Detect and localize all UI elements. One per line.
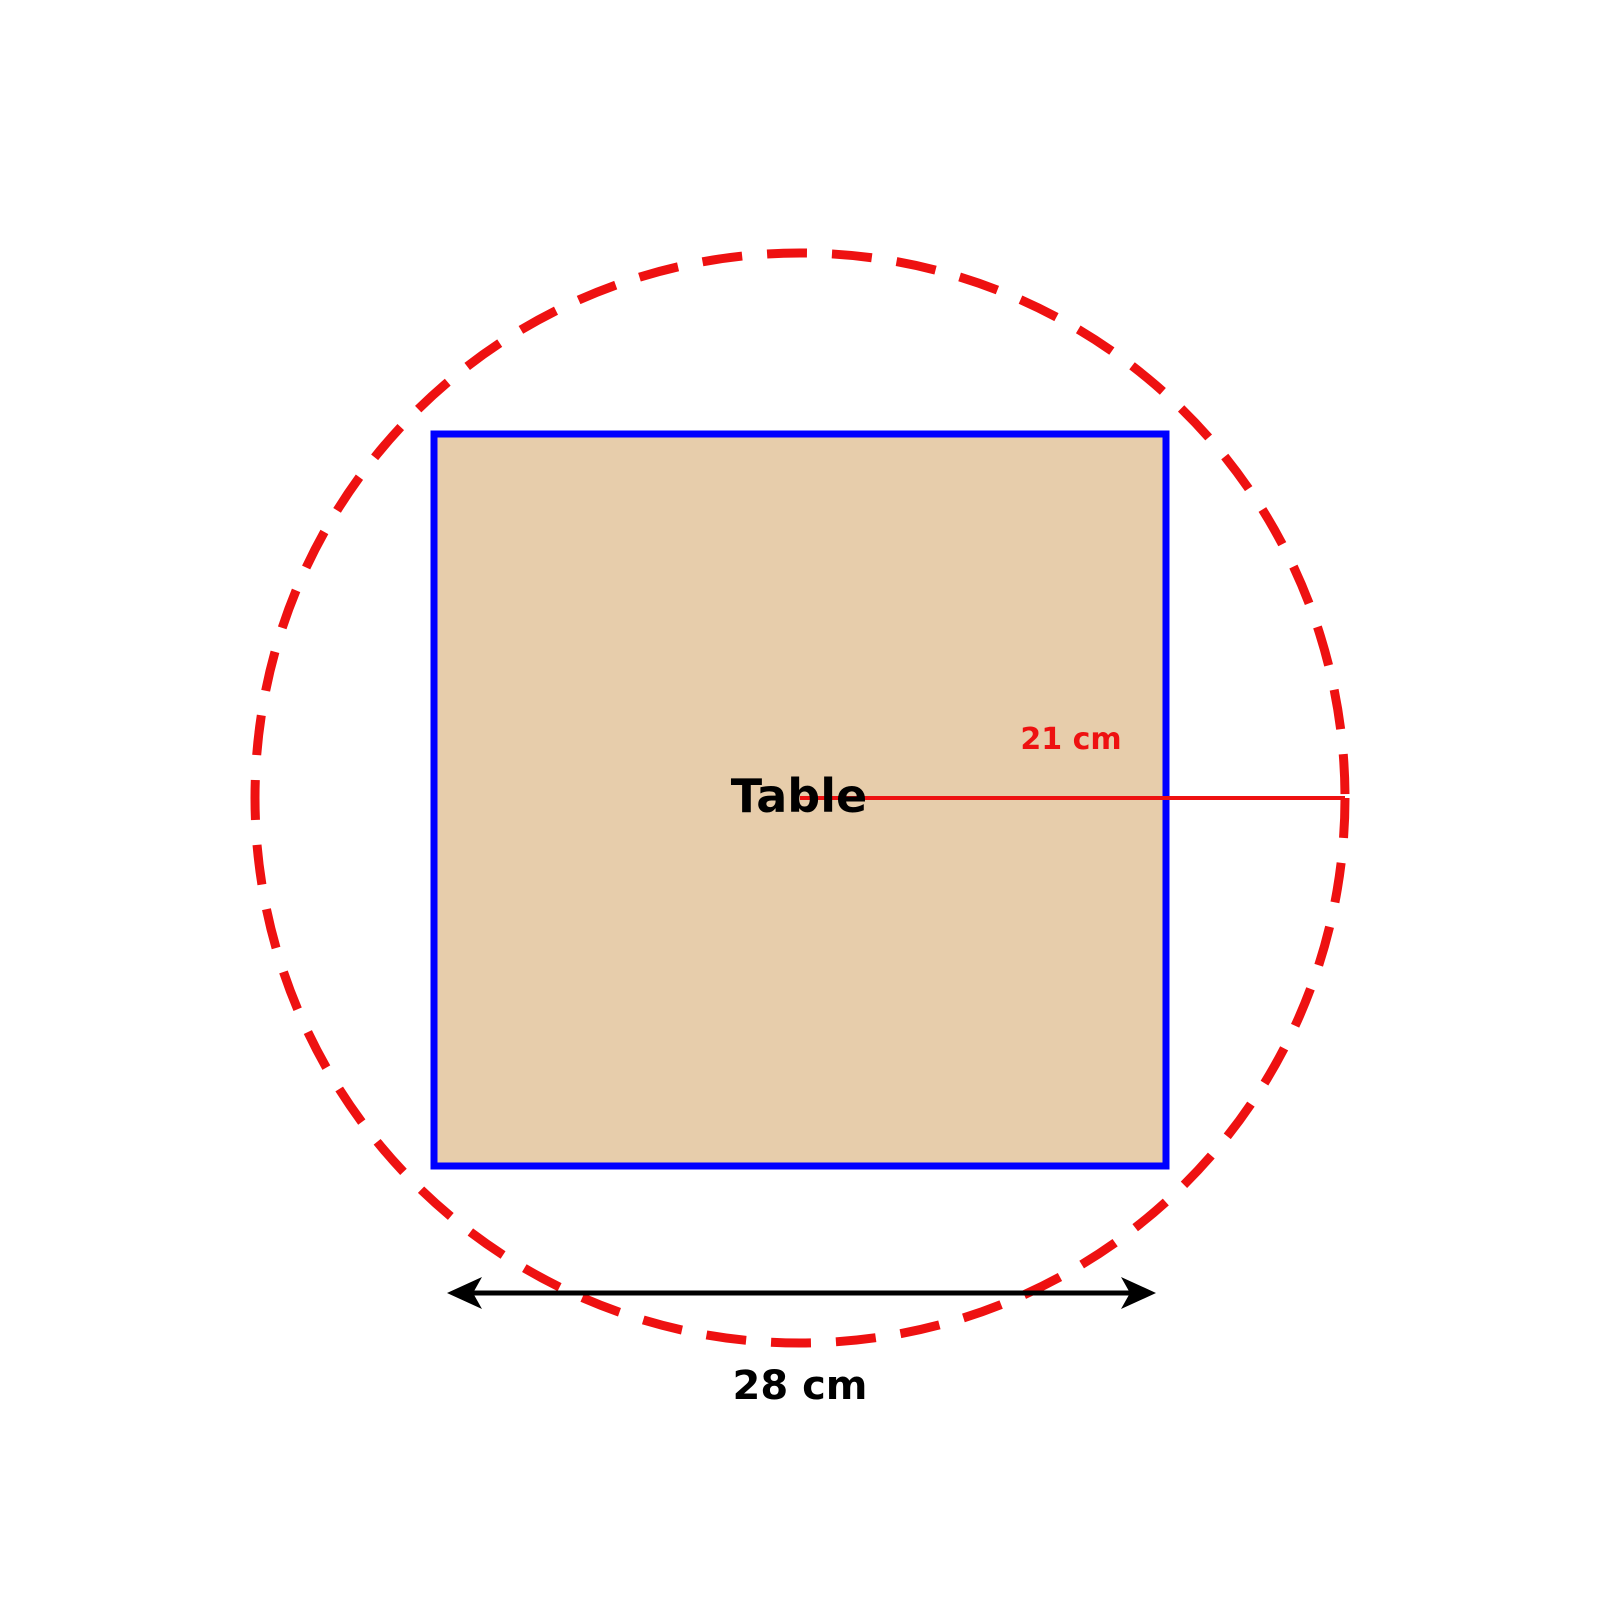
- diagram-canvas: 21 cm Table 28 cm: [0, 0, 1600, 1600]
- table-circle-diagram: 21 cm Table 28 cm: [0, 0, 1600, 1600]
- radius-label: 21 cm: [1020, 722, 1121, 757]
- table-label: Table: [731, 769, 867, 823]
- width-label: 28 cm: [733, 1363, 868, 1409]
